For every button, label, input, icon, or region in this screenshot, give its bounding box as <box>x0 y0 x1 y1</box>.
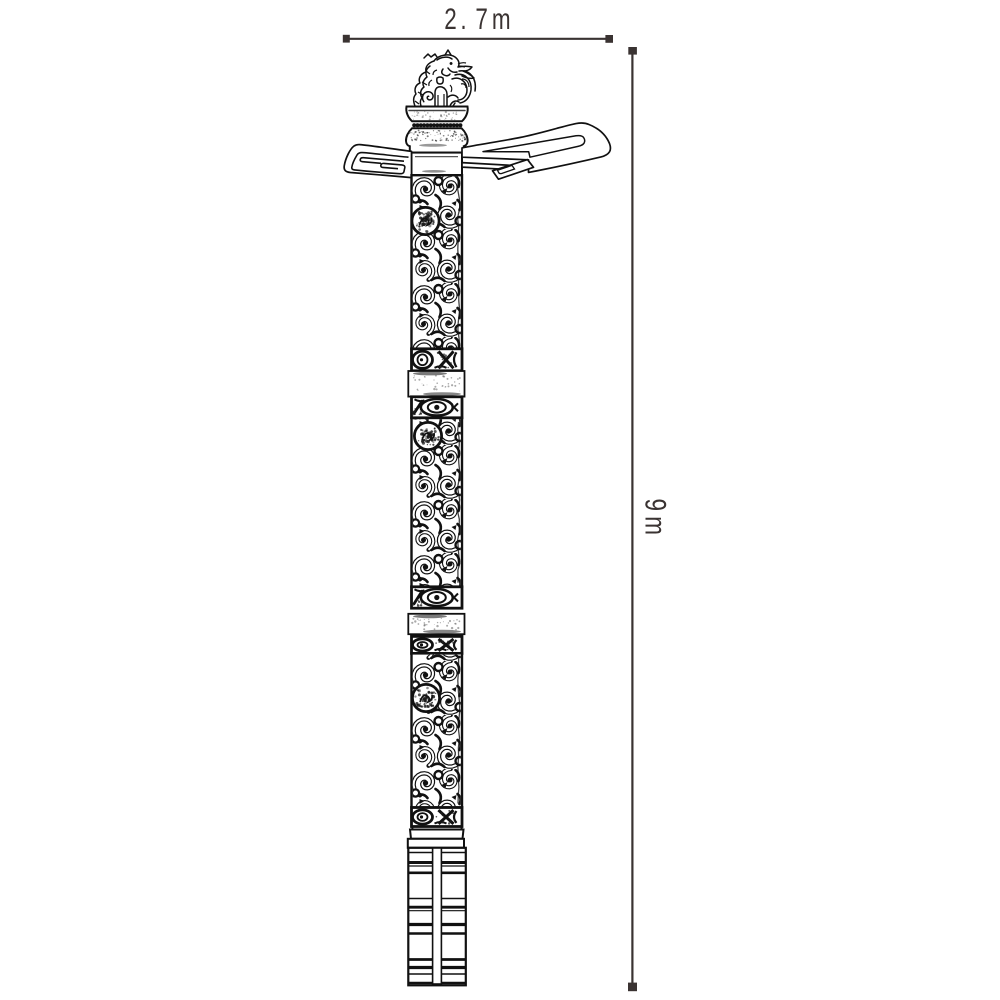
svg-text:2.7m: 2.7m <box>444 2 510 36</box>
svg-text:9m: 9m <box>639 499 673 541</box>
